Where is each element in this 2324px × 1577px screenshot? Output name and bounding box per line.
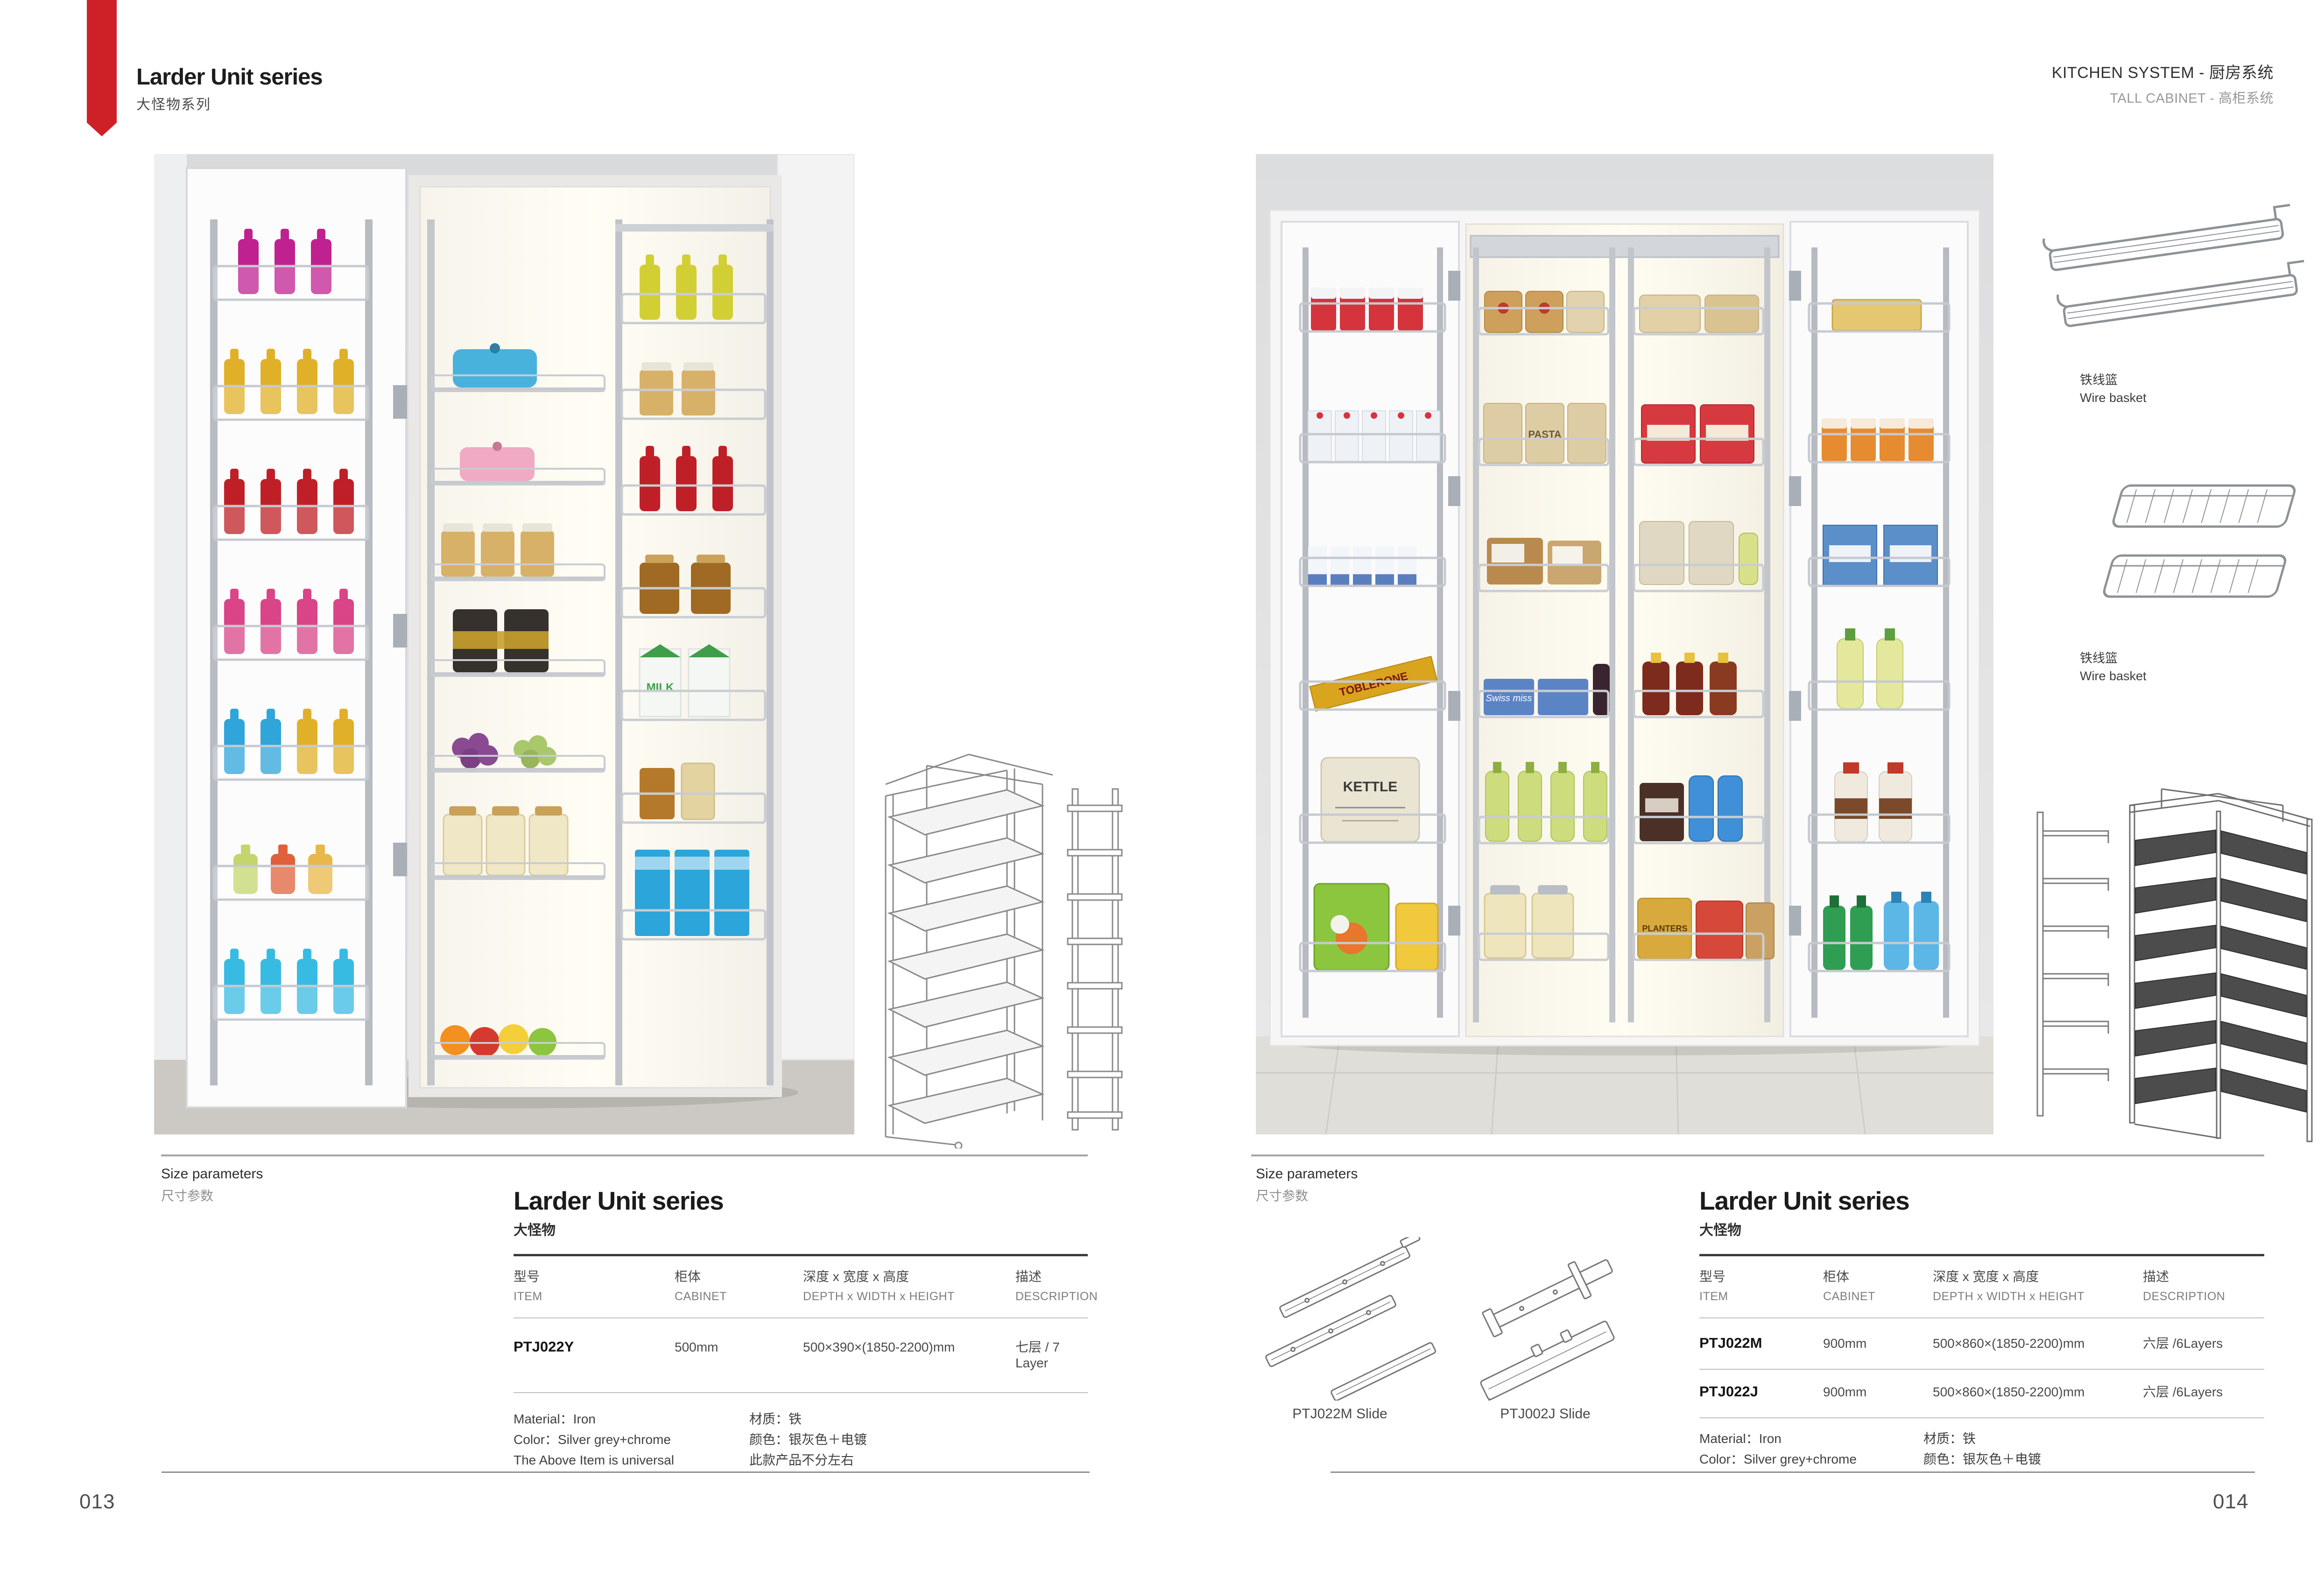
swiss-miss-label: Swiss miss: [1486, 693, 1532, 704]
right-product-photo: TOBLERONE KETTLE: [1256, 154, 1993, 1134]
wire-basket-label-1: 铁线篮 Wire basket: [2080, 370, 2147, 405]
description-value: 六层 /6Layers: [2143, 1333, 2264, 1352]
item-code: PTJ022J: [1699, 1383, 1823, 1400]
cabinet-value: 900mm: [1823, 1385, 1933, 1400]
ladder-frame-drawing: [2037, 812, 2108, 1116]
note-color-cn: 颜色：银灰色＋电镀: [749, 1433, 1088, 1446]
hinge-icon: [1448, 906, 1460, 936]
right-photo-interior: PASTA Swiss miss: [1466, 224, 1783, 1036]
size-parameters-label-cn: 尺寸参数: [161, 1186, 263, 1204]
col-dim-cn: 深度 x 宽度 x 高度: [803, 1267, 1015, 1285]
col-dim-en: DEPTH x WIDTH x HEIGHT: [803, 1290, 1015, 1303]
open-door-with-rack: [187, 168, 407, 1107]
kettle-label: KETTLE: [1343, 779, 1398, 795]
door-basket-milk-cartons: [1300, 411, 1445, 462]
left-footer-rule: [162, 1471, 1090, 1473]
wire-basket-2-en: Wire basket: [2080, 669, 2147, 683]
col-item-cn: 型号: [514, 1267, 675, 1285]
note-material-cn: 材质：铁: [749, 1413, 1088, 1426]
red-ribbon-marker: [87, 0, 117, 136]
note-material-en: Material：Iron: [1699, 1432, 1923, 1445]
description-value: 六层 /6Layers: [2143, 1382, 2264, 1401]
size-parameters-label: Size parameters: [161, 1166, 263, 1182]
right-photo-right-door: [1789, 222, 1968, 1036]
left-page-header: Larder Unit series 大怪物系列: [136, 65, 323, 113]
wire-basket-drawing-bottom: [2073, 467, 2324, 635]
catalog-spread: Larder Unit series 大怪物系列: [0, 0, 2324, 1577]
right-photo-left-door: TOBLERONE KETTLE: [1282, 222, 1460, 1036]
slide-j-drawing: [1475, 1232, 1634, 1401]
wire-basket-2-cn: 铁线篮: [2080, 648, 2147, 666]
hinge-icon: [1789, 691, 1801, 721]
table-row: PTJ022J 900mm 500×860×(1850-2200)mm 六层 /…: [1699, 1382, 2264, 1401]
hinge-icon: [393, 843, 407, 876]
col-desc-en: DESCRIPTION: [2143, 1290, 2264, 1303]
table-row: PTJ022M 900mm 500×860×(1850-2200)mm 六层 /…: [1699, 1333, 2264, 1352]
tall-cabinet-subtitle: TALL CABINET - 高柜系统: [1620, 87, 2274, 107]
col-cabinet-cn: 柜体: [1823, 1267, 1933, 1285]
cabinet-value: 900mm: [1823, 1336, 1933, 1351]
hinge-icon: [1448, 476, 1460, 506]
page-number-right: 014: [2213, 1490, 2248, 1514]
kitchen-system-title: KITCHEN SYSTEM - 厨房系统: [1620, 60, 2274, 83]
left-spec-table: Larder Unit series 大怪物 型号ITEM 柜体CABINET …: [514, 1188, 1088, 1467]
table-rule: [514, 1392, 1088, 1393]
table-rule: [1699, 1369, 2264, 1370]
page-title-cn: 大怪物系列: [136, 93, 323, 113]
note-material-en: Material：Iron: [514, 1413, 749, 1426]
left-divider-rule: [161, 1155, 1088, 1156]
planters-label: PLANTERS: [1642, 924, 1687, 933]
table-title-cn: 大怪物: [1699, 1218, 2264, 1239]
left-size-parameters: Size parameters 尺寸参数: [161, 1166, 263, 1204]
table-notes: Material：Iron 材质：铁 Color：Silver grey+chr…: [514, 1413, 1088, 1467]
table-rule-top: [1699, 1254, 2264, 1256]
col-desc-cn: 描述: [2143, 1267, 2264, 1285]
wire-basket-drawing-top: [2035, 201, 2316, 359]
col-item-en: ITEM: [1699, 1290, 1823, 1303]
hinge-icon: [1789, 271, 1801, 301]
col-cabinet-cn: 柜体: [675, 1267, 803, 1285]
hinge-icon: [393, 385, 407, 419]
table-header-row: 型号ITEM 柜体CABINET 深度 x 宽度 x 高度DEPTH x WID…: [1699, 1267, 2264, 1303]
size-parameters-label-cn: 尺寸参数: [1256, 1186, 1358, 1204]
right-size-parameters: Size parameters 尺寸参数: [1256, 1166, 1358, 1204]
table-rule: [514, 1317, 1088, 1318]
hinge-icon: [393, 614, 407, 648]
col-cabinet-en: CABINET: [675, 1290, 803, 1303]
right-page-header: KITCHEN SYSTEM - 厨房系统 TALL CABINET - 高柜系…: [1620, 60, 2274, 107]
table-title: Larder Unit series: [514, 1188, 1088, 1214]
cabinet-value: 500mm: [675, 1340, 803, 1355]
frame-shelves-7: [886, 790, 1042, 1148]
note-color-cn: 颜色：银灰色＋电镀: [1923, 1453, 2264, 1466]
page-title: Larder Unit series: [136, 65, 323, 89]
col-dim-en: DEPTH x WIDTH x HEIGHT: [1933, 1290, 2143, 1303]
table-header-row: 型号ITEM 柜体CABINET 深度 x 宽度 x 高度DEPTH x WID…: [514, 1267, 1088, 1303]
item-code: PTJ022Y: [514, 1338, 675, 1355]
hinge-icon: [1789, 476, 1801, 506]
dimensions-value: 500×860×(1850-2200)mm: [1933, 1336, 2143, 1351]
table-rule: [1699, 1417, 2264, 1418]
right-footer-rule: [1331, 1471, 2255, 1473]
slide-m-drawing: [1261, 1237, 1438, 1401]
right-divider-rule: [1251, 1155, 2264, 1156]
right-spec-table: Larder Unit series 大怪物 型号ITEM 柜体CABINET …: [1699, 1188, 2264, 1466]
hinge-icon: [1448, 271, 1460, 301]
left-product-photo: MILK: [154, 154, 854, 1134]
double-tower-frame-drawing: [2130, 789, 2312, 1141]
item-code: PTJ022M: [1699, 1335, 1823, 1352]
hinge-icon: [1448, 691, 1460, 721]
table-rule: [1699, 1317, 2264, 1318]
col-desc-cn: 描述: [1015, 1267, 1098, 1285]
wire-basket-1-en: Wire basket: [2080, 391, 2147, 405]
table-row: PTJ022Y 500mm 500×390×(1850-2200)mm 七层 /…: [514, 1337, 1088, 1371]
dimensions-value: 500×390×(1850-2200)mm: [803, 1340, 1015, 1355]
note-color-en: Color：Silver grey+chrome: [514, 1433, 749, 1446]
dimensions-value: 500×860×(1850-2200)mm: [1933, 1385, 2143, 1400]
note-material-cn: 材质：铁: [1923, 1432, 2264, 1445]
wire-basket-label-2: 铁线篮 Wire basket: [2080, 648, 2147, 683]
note-color-en: Color：Silver grey+chrome: [1699, 1453, 1923, 1466]
slide-j-label: PTJ002J Slide: [1447, 1406, 1643, 1422]
note-universal-cn: 此款产品不分左右: [749, 1454, 1088, 1467]
col-item-en: ITEM: [514, 1290, 675, 1303]
ladder-frame-drawing: [1068, 789, 1122, 1130]
table-rule-top: [514, 1254, 1088, 1256]
wire-basket-1-cn: 铁线篮: [2080, 370, 2147, 388]
col-item-cn: 型号: [1699, 1267, 1823, 1285]
hinge-icon: [1789, 906, 1801, 936]
table-title-cn: 大怪物: [514, 1218, 1088, 1239]
slide-m-label: PTJ022M Slide: [1242, 1406, 1438, 1422]
tower-basket-blue-cartons: [622, 850, 765, 939]
size-parameters-label: Size parameters: [1256, 1166, 1358, 1182]
right-frame-line-drawing: [2021, 761, 2320, 1148]
col-dim-cn: 深度 x 宽度 x 高度: [1933, 1267, 2143, 1285]
col-desc-en: DESCRIPTION: [1015, 1290, 1098, 1303]
note-universal-en: The Above Item is universal: [514, 1454, 749, 1467]
left-frame-line-drawing: [857, 710, 1123, 1148]
page-number-left: 013: [79, 1490, 115, 1514]
description-value: 七层 / 7 Layer: [1015, 1337, 1088, 1371]
table-title: Larder Unit series: [1699, 1188, 2264, 1214]
col-cabinet-en: CABINET: [1823, 1290, 1933, 1303]
table-notes: Material：Iron 材质：铁 Color：Silver grey+chr…: [1699, 1432, 2264, 1466]
